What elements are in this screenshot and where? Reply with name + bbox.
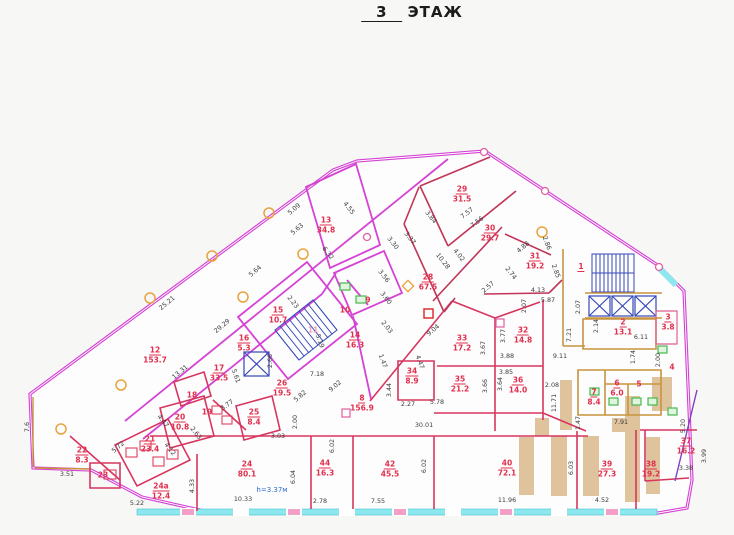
room-label: 33.8 bbox=[661, 313, 674, 332]
room-label: 165.3 bbox=[237, 334, 250, 353]
dimension-label: 2.08 bbox=[545, 381, 559, 389]
room-label: 1416.3 bbox=[346, 331, 365, 350]
room-label: 8156.9 bbox=[350, 394, 374, 413]
dimension-label: 10.33 bbox=[234, 495, 252, 503]
dimension-label: 3.44 bbox=[385, 383, 393, 397]
dimension-label: 6.04 bbox=[289, 470, 297, 484]
dimension-label: 5.20 bbox=[679, 419, 687, 433]
dimension-label: 7.91 bbox=[614, 418, 628, 426]
room-label: 3819.2 bbox=[642, 460, 661, 479]
room-label: 1 bbox=[577, 262, 584, 272]
dimension-label: 2.27 bbox=[401, 400, 415, 408]
dimension-label: 5.78 bbox=[430, 398, 444, 406]
dimension-label: 5.22 bbox=[130, 499, 144, 507]
floorplan-drawing bbox=[0, 0, 734, 535]
dimension-label: 3.66 bbox=[481, 379, 489, 393]
room-label: 23 bbox=[97, 471, 109, 480]
room-label: 4 bbox=[668, 363, 675, 372]
dimension-label: 6.02 bbox=[328, 439, 336, 453]
dimension-label: 7.6 bbox=[23, 422, 31, 432]
room-label: 9 bbox=[364, 296, 371, 305]
dimension-label: 2.07 bbox=[574, 300, 582, 314]
room-label: 5 bbox=[635, 380, 642, 389]
dimension-label: 3.99 bbox=[700, 449, 708, 463]
room-label: 78.4 bbox=[587, 388, 600, 407]
room-label: 3029.7 bbox=[481, 224, 500, 243]
dimension-label: 7.55 bbox=[371, 497, 385, 505]
dimension-label: 2.78 bbox=[313, 497, 327, 505]
room-label: 10 bbox=[339, 306, 351, 315]
dimension-label: 9.11 bbox=[553, 352, 567, 360]
room-label: 4245.5 bbox=[381, 460, 400, 479]
dimension-label: 3.77 bbox=[499, 329, 507, 343]
room-label: 2867.5 bbox=[419, 273, 438, 292]
dimension-label: 7.18 bbox=[310, 370, 324, 378]
room-label: 1733.5 bbox=[210, 364, 229, 383]
room-label: 2480.1 bbox=[238, 460, 257, 479]
room-label: 3119.2 bbox=[526, 252, 545, 271]
room-label: 3927.3 bbox=[598, 460, 617, 479]
room-label: 3614.0 bbox=[509, 376, 528, 395]
room-label: 3521.2 bbox=[451, 375, 470, 394]
dimension-label: 5.87 bbox=[541, 296, 555, 304]
room-label: 3317.2 bbox=[453, 334, 472, 353]
dimension-label: 3.38 bbox=[679, 464, 693, 472]
dimension-label: 2.00 bbox=[291, 415, 299, 429]
room-label: 258.4 bbox=[247, 408, 260, 427]
dimension-label: 6.03 bbox=[567, 461, 575, 475]
room-label: 1510.7 bbox=[269, 306, 288, 325]
dimension-label: 2.07 bbox=[520, 299, 528, 313]
room-label: 2010.8 bbox=[171, 413, 190, 432]
room-label: 4416.3 bbox=[316, 459, 335, 478]
room-label: 18 bbox=[186, 391, 198, 400]
room-label: 228.3 bbox=[75, 446, 88, 465]
height-note: h=3.37м bbox=[256, 486, 287, 494]
dimension-label: 3.03 bbox=[271, 432, 285, 440]
room-label: 213.1 bbox=[614, 318, 633, 337]
room-label: 11 bbox=[307, 326, 319, 335]
room-label: 4072.1 bbox=[498, 459, 517, 478]
dimension-label: 11.71 bbox=[550, 394, 558, 412]
room-label: 3214.8 bbox=[514, 326, 533, 345]
room-label: 2123.4 bbox=[141, 435, 160, 454]
dimension-label: 3.67 bbox=[479, 341, 487, 355]
dimension-label: 4.13 bbox=[531, 286, 545, 294]
room-label: 348.9 bbox=[405, 367, 418, 386]
dimension-label: 4.52 bbox=[595, 496, 609, 504]
dimension-label: 2.14 bbox=[592, 319, 600, 333]
room-label: 2619.5 bbox=[273, 379, 292, 398]
dimension-label: 3.88 bbox=[500, 352, 514, 360]
floorplan-page: 3ЭТАЖ bbox=[0, 0, 734, 535]
dimension-label: 30.01 bbox=[415, 421, 433, 429]
room-label: 12153.7 bbox=[143, 346, 167, 365]
room-label: 19 bbox=[201, 408, 213, 417]
room-label: 3716.2 bbox=[677, 437, 696, 456]
room-label: 1334.8 bbox=[317, 216, 336, 235]
dimension-label: 4.33 bbox=[188, 479, 196, 493]
room-label: 2931.5 bbox=[453, 185, 472, 204]
dimension-label: 6.02 bbox=[420, 459, 428, 473]
room-label: 24а12.4 bbox=[152, 482, 171, 501]
dimension-label: 2.66 bbox=[266, 354, 274, 368]
dimension-label: 6.11 bbox=[634, 333, 648, 341]
dimension-label: 1.74 bbox=[629, 350, 637, 364]
dimension-label: 7.21 bbox=[565, 328, 573, 342]
dimension-label: 3.51 bbox=[60, 470, 74, 478]
dimension-label: 3.64 bbox=[496, 377, 504, 391]
dimension-label: 1.47 bbox=[574, 416, 582, 430]
room-label: 66.0 bbox=[610, 379, 623, 398]
dimension-label: 2.00 bbox=[654, 353, 662, 367]
dimension-label: 11.96 bbox=[498, 496, 516, 504]
